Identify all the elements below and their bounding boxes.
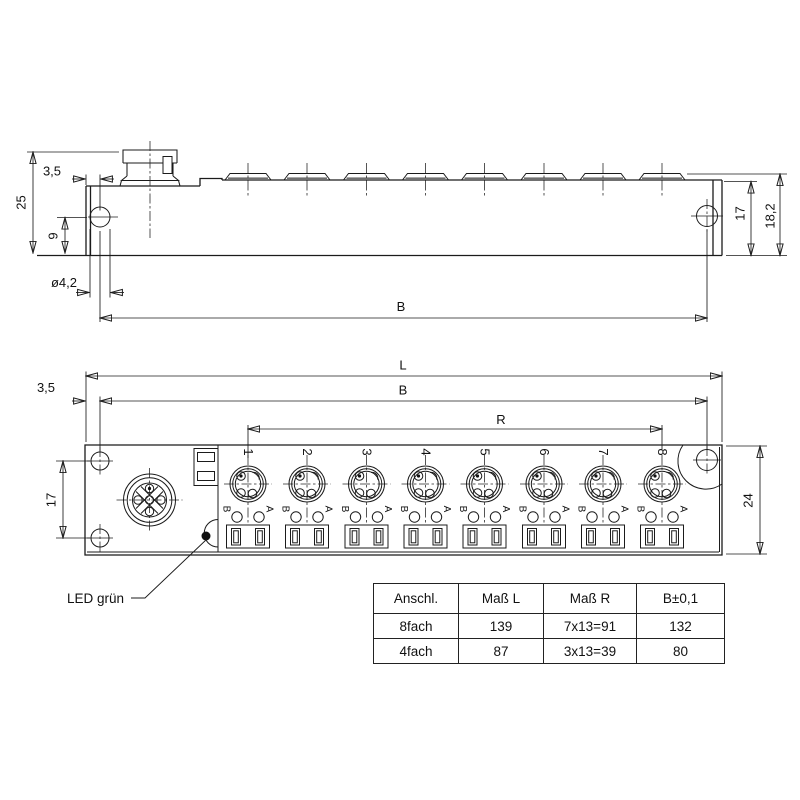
port-number-3: 3 xyxy=(360,448,375,455)
port-number-2: 2 xyxy=(300,448,315,455)
port-number-6: 6 xyxy=(537,448,552,455)
port-number-4: 4 xyxy=(419,448,434,455)
dim-25: 25 xyxy=(14,195,29,209)
m12-connector-side xyxy=(120,141,180,238)
side-body-outline xyxy=(86,179,722,256)
table-cell: 132 xyxy=(637,614,725,639)
port-number-7: 7 xyxy=(596,448,611,455)
dim-9: 9 xyxy=(46,232,61,239)
socket-3 xyxy=(339,455,393,548)
table-header-mass-l: Maß L xyxy=(459,584,544,614)
table-cell: 4fach xyxy=(374,639,459,664)
socket-2 xyxy=(280,455,334,548)
table-row-4fach: 4fach 87 3x13=39 80 xyxy=(374,639,725,664)
dim-l: L xyxy=(399,358,406,373)
table-row-8fach: 8fach 139 7x13=91 132 xyxy=(374,614,725,639)
table-cell: 139 xyxy=(459,614,544,639)
dimension-table: Anschl. Maß L Maß R B±0,1 8fach 139 7x13… xyxy=(373,583,725,664)
m12-connector-front xyxy=(117,468,183,532)
table-cell: 3x13=39 xyxy=(544,639,637,664)
table-header-row: Anschl. Maß L Maß R B±0,1 xyxy=(374,584,725,614)
socket-5 xyxy=(457,455,511,548)
table-header-mass-r: Maß R xyxy=(544,584,637,614)
dim-24: 24 xyxy=(741,493,756,507)
socket-4 xyxy=(398,455,452,548)
dim-r: R xyxy=(496,412,505,427)
technical-drawing: B A xyxy=(0,0,800,800)
dim-18-2: 18,2 xyxy=(763,203,778,228)
port-number-8: 8 xyxy=(655,448,670,455)
marking-window xyxy=(194,449,218,486)
dim-b-front: B xyxy=(399,383,408,398)
dim-hole-dia: ø4,2 xyxy=(51,275,77,290)
dim-3-5-side: 3,5 xyxy=(43,164,61,179)
table-cell: 87 xyxy=(459,639,544,664)
drawing-page: B A xyxy=(0,0,800,800)
front-hole-right xyxy=(693,446,721,474)
table-cell: 7x13=91 xyxy=(544,614,637,639)
dim-17-side: 17 xyxy=(733,206,748,220)
front-view: LED grün 1 2 3 4 5 6 7 8 L B 3,5 R 17 xyxy=(37,358,767,607)
dim-17-front: 17 xyxy=(44,493,59,507)
port-number-5: 5 xyxy=(478,448,493,455)
socket-8 xyxy=(635,455,689,548)
port-number-1: 1 xyxy=(241,448,256,455)
table-header-anschl: Anschl. xyxy=(374,584,459,614)
socket-7 xyxy=(576,455,630,548)
led-green-label: LED grün xyxy=(67,591,124,606)
led-leader-line xyxy=(131,539,207,598)
dim-b-side: B xyxy=(397,299,406,314)
dim-3-5-front: 3,5 xyxy=(37,380,55,395)
table-header-b: B±0,1 xyxy=(637,584,725,614)
front-hole-bottom-left xyxy=(87,524,113,552)
table-cell: 8fach xyxy=(374,614,459,639)
green-led xyxy=(202,532,211,541)
socket-1 xyxy=(221,455,275,548)
side-view: 25 3,5 9 ø4,2 B 17 18,2 xyxy=(14,141,788,322)
table-cell: 80 xyxy=(637,639,725,664)
socket-6 xyxy=(517,455,571,548)
